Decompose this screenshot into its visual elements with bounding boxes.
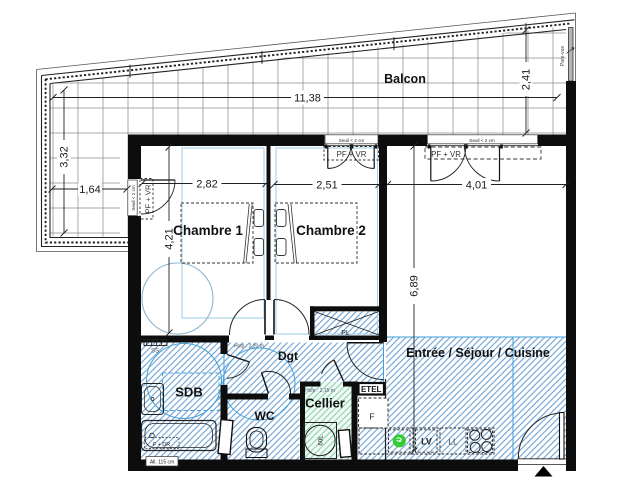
svg-text:WC: WC — [255, 409, 275, 423]
svg-text:2,51: 2,51 — [316, 180, 337, 192]
svg-text:PF + VR: PF + VR — [143, 184, 152, 213]
svg-text:6,89: 6,89 — [409, 275, 421, 296]
svg-text:Seuil < 2 cm: Seuil < 2 cm — [131, 185, 136, 211]
svg-text:11,38: 11,38 — [294, 93, 321, 105]
svg-text:Chambre 1: Chambre 1 — [173, 223, 243, 238]
svg-text:3,32: 3,32 — [59, 146, 71, 167]
svg-text:1,64: 1,64 — [79, 184, 100, 196]
svg-text:F + DR: F + DR — [153, 442, 170, 448]
svg-text:4,01: 4,01 — [466, 180, 487, 192]
svg-text:Seuil < 2 cm: Seuil < 2 cm — [469, 138, 495, 143]
svg-text:All. 115 cm: All. 115 cm — [150, 460, 174, 466]
svg-text:PL: PL — [341, 330, 350, 337]
svg-text:Chambre 2: Chambre 2 — [296, 223, 366, 238]
svg-text:F: F — [369, 412, 374, 422]
svg-text:SS: SS — [151, 349, 159, 355]
svg-text:SDB: SDB — [175, 385, 202, 400]
svg-text:Cellier: Cellier — [305, 396, 345, 411]
svg-text:Entrée / Séjour / Cuisine: Entrée / Séjour / Cuisine — [406, 346, 550, 360]
svg-text:2,82: 2,82 — [196, 179, 217, 191]
svg-text:ETEL: ETEL — [361, 385, 382, 394]
svg-text:PF + VR: PF + VR — [431, 150, 461, 159]
svg-text:LV: LV — [421, 437, 432, 447]
svg-text:Seuil < 2 cm: Seuil < 2 cm — [339, 138, 365, 143]
svg-text:2,41: 2,41 — [521, 69, 533, 90]
svg-text:60L: 60L — [317, 435, 324, 446]
svg-text:LL: LL — [448, 436, 458, 446]
svg-text:Hsfp : 2,15 m: Hsfp : 2,15 m — [305, 388, 335, 394]
svg-text:Balcon: Balcon — [384, 72, 426, 86]
svg-text:Dgt: Dgt — [278, 349, 298, 363]
svg-text:Hsfp : 2,20 m: Hsfp : 2,20 m — [234, 344, 264, 350]
svg-text:Pare-vue: Pare-vue — [560, 46, 566, 67]
